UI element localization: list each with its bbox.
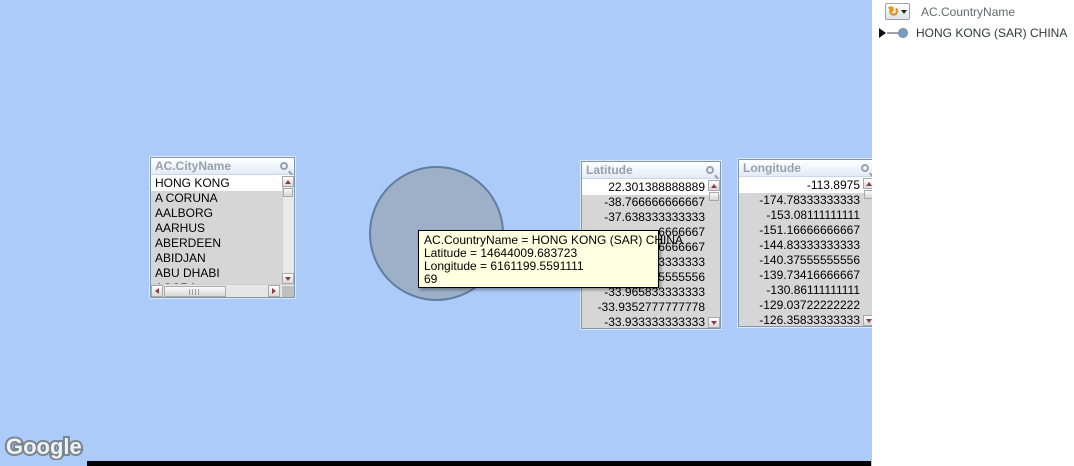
list-item[interactable]: -129.03722222222 [739,298,875,313]
scrollbar-corner [282,286,294,297]
scroll-down-button[interactable] [282,273,294,284]
arrow-down-icon [285,277,291,281]
search-icon[interactable] [706,166,714,174]
list-item[interactable]: 22.301388888889 [582,180,720,195]
group-dimension-label: AC.CountryName [921,5,1015,19]
scrollbar-thumb[interactable] [283,188,293,197]
listbox-latitude-title: Latitude [586,163,633,177]
list-item[interactable]: -113.8975 [739,178,875,193]
list-item[interactable]: -144.83333333333 [739,238,875,253]
expand-arrow-icon[interactable] [879,28,886,38]
google-logo: Google [4,433,86,465]
list-item[interactable]: ABIDJAN [151,251,282,266]
listbox-longitude: Longitude -113.8975 -174.78333333333 -15… [738,159,876,327]
list-item[interactable]: -38.766666666667 [582,195,720,210]
listbox-cityname-caption[interactable]: AC.CityName [151,158,294,175]
scrollbar-thumb[interactable] [709,192,719,201]
list-item[interactable]: -37.638333333333 [582,210,720,225]
list-item[interactable]: -139.73416666667 [739,268,875,283]
list-item[interactable]: -174.78333333333 [739,193,875,208]
horizontal-scrollbar[interactable] [151,284,294,297]
scroll-up-button[interactable] [708,180,720,191]
cycle-group-button[interactable]: ↻ [885,3,910,20]
search-icon[interactable] [280,162,288,170]
listbox-longitude-title: Longitude [743,161,801,175]
list-item[interactable]: -33.933333333333 [582,315,720,328]
scroll-right-button[interactable] [268,285,280,297]
arrow-left-icon [155,288,159,294]
list-item[interactable]: -140.37555555556 [739,253,875,268]
list-item[interactable]: A CORUNA [151,191,282,206]
arrow-down-icon [711,321,717,325]
listbox-cityname-title: AC.CityName [155,159,231,173]
search-icon[interactable] [861,164,869,172]
side-panel: ↻ AC.CountryName HONG KONG (SAR) CHINA [872,0,1074,466]
list-item[interactable]: -33.9352777777778 [582,300,720,315]
cycle-arrow-icon: ↻ [888,5,899,18]
listbox-longitude-body: -113.8975 -174.78333333333 -153.08111111… [739,178,875,326]
arrow-up-icon [285,180,291,184]
selection-row[interactable]: HONG KONG (SAR) CHINA [879,26,1067,40]
listbox-cityname-body: HONG KONG A CORUNA AALBORG AARHUS ABERDE… [151,176,294,284]
list-item[interactable]: HONG KONG [151,176,282,191]
tooltip-line-longitude: Longitude = 6161199.5591111 [424,260,653,273]
cycle-group-row: ↻ AC.CountryName [885,3,1015,20]
listbox-latitude-caption[interactable]: Latitude [582,162,720,179]
list-item[interactable]: ABU DHABI [151,266,282,281]
google-logo-text: Google [6,434,82,459]
arrow-up-icon [711,184,717,188]
map-tooltip: AC.CountryName = HONG KONG (SAR) CHINA L… [418,230,659,288]
scroll-down-button[interactable] [708,317,720,328]
list-item[interactable]: -130.86111111111 [739,283,875,298]
chevron-down-icon [901,10,907,14]
arrow-right-icon [272,288,276,294]
list-item[interactable]: -126.35833333333 [739,313,875,326]
vertical-scrollbar[interactable] [708,180,720,328]
list-item[interactable]: -153.08111111111 [739,208,875,223]
listbox-longitude-caption[interactable]: Longitude [739,160,875,177]
scroll-up-button[interactable] [282,176,294,187]
selected-country-label: HONG KONG (SAR) CHINA [916,26,1067,40]
vertical-scrollbar[interactable] [282,176,294,284]
list-item[interactable]: AALBORG [151,206,282,221]
scrollbar-thumb[interactable] [164,286,226,297]
tooltip-line-count: 69 [424,273,653,286]
bottom-bar [87,461,871,466]
node-dot-icon [898,28,908,38]
list-item[interactable]: AARHUS [151,221,282,236]
listbox-cityname: AC.CityName HONG KONG A CORUNA AALBORG A… [150,157,295,298]
thumb-grip-icon [189,289,201,295]
list-item[interactable]: ABERDEEN [151,236,282,251]
list-item[interactable]: -151.16666666667 [739,223,875,238]
scroll-left-button[interactable] [151,285,163,297]
